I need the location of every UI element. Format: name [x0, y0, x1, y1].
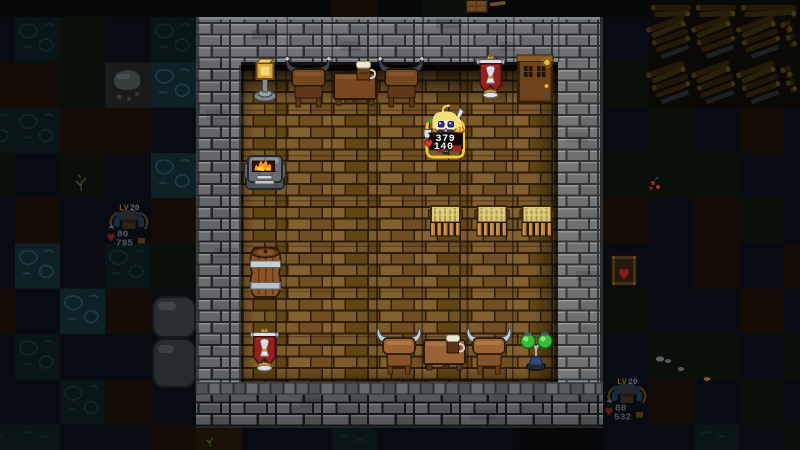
svg-text:532: 532	[614, 412, 631, 423]
svg-text:795: 795	[116, 238, 133, 249]
